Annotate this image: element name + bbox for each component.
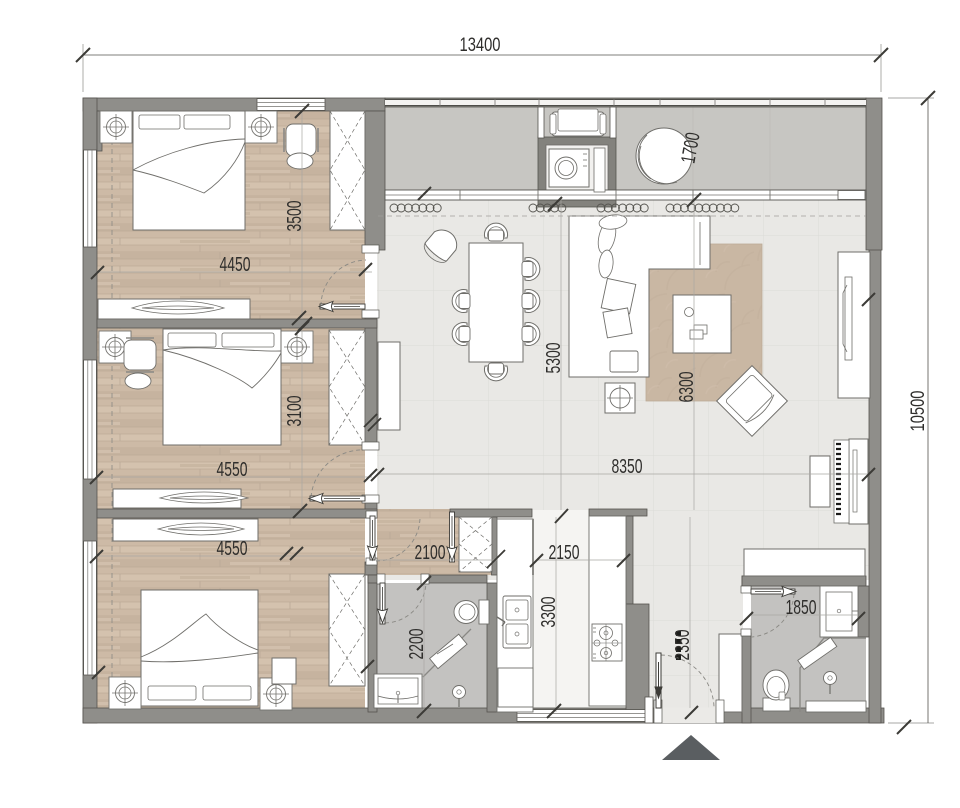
svg-text:3300: 3300: [538, 597, 560, 628]
svg-text:6300: 6300: [676, 372, 698, 403]
svg-text:4550: 4550: [217, 538, 248, 560]
svg-text:2350: 2350: [672, 630, 694, 661]
svg-text:4550: 4550: [217, 459, 248, 481]
svg-text:13400: 13400: [460, 35, 501, 56]
svg-text:8350: 8350: [612, 456, 643, 478]
svg-text:2150: 2150: [549, 542, 580, 564]
svg-text:3100: 3100: [284, 396, 306, 427]
svg-text:2200: 2200: [406, 629, 428, 660]
svg-text:5300: 5300: [543, 343, 565, 374]
svg-text:3500: 3500: [284, 201, 306, 232]
svg-text:4450: 4450: [220, 254, 251, 276]
svg-text:10500: 10500: [908, 391, 929, 432]
svg-text:1850: 1850: [786, 597, 817, 619]
svg-text:2100: 2100: [415, 542, 446, 564]
